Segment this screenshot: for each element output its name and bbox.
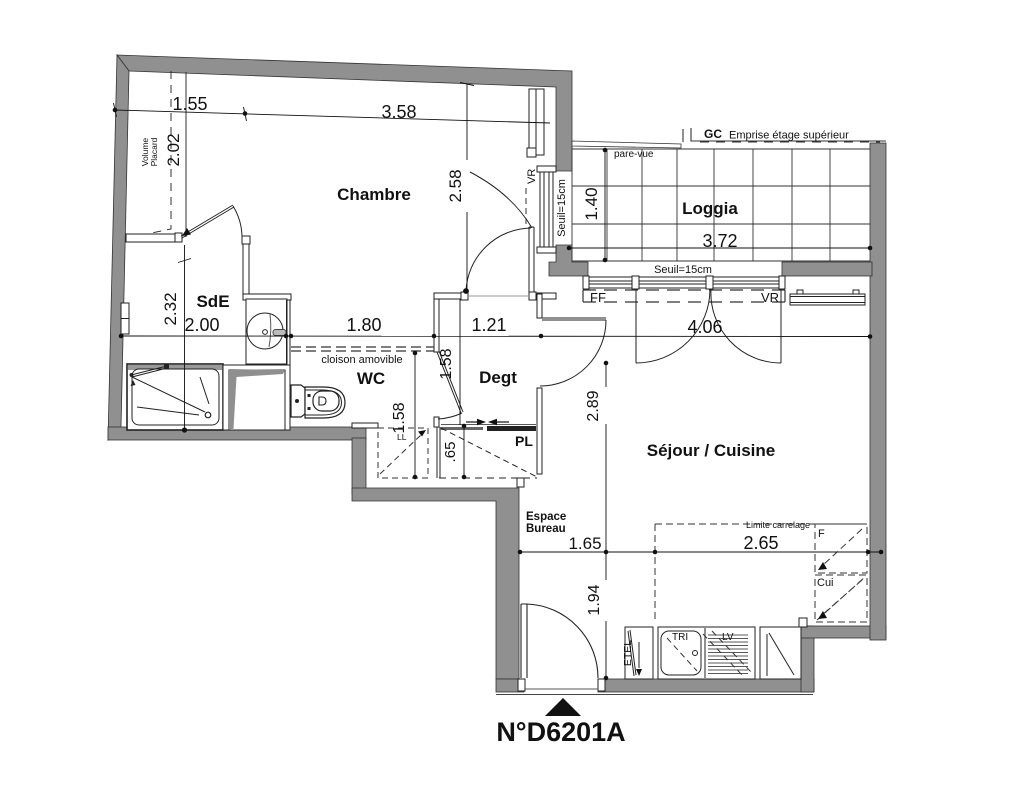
svg-text:ETEL: ETEL [622, 640, 634, 666]
svg-text:1.58: 1.58 [438, 348, 455, 379]
svg-text:F: F [818, 528, 825, 540]
svg-text:2.02: 2.02 [164, 133, 183, 166]
svg-text:Loggia: Loggia [682, 199, 738, 218]
svg-text:1.40: 1.40 [582, 187, 601, 220]
svg-text:Emprise étage supérieur: Emprise étage supérieur [729, 130, 849, 142]
svg-text:VR: VR [761, 290, 779, 305]
svg-text:Degt: Degt [479, 368, 517, 387]
svg-text:3.72: 3.72 [702, 231, 737, 251]
svg-text:LV: LV [722, 632, 734, 643]
svg-text:GC: GC [704, 127, 722, 141]
svg-text:3.58: 3.58 [381, 102, 416, 122]
svg-text:pare-vue: pare-vue [614, 149, 654, 160]
svg-text:Espace: Espace [526, 511, 566, 523]
svg-text:PL: PL [515, 433, 533, 449]
svg-text:2.32: 2.32 [161, 292, 180, 325]
svg-text:1.94: 1.94 [586, 584, 603, 615]
svg-text:Séjour / Cuisine: Séjour / Cuisine [647, 441, 775, 460]
svg-text:1.55: 1.55 [172, 94, 207, 114]
svg-text:WC: WC [357, 369, 385, 388]
svg-text:Placard: Placard [149, 137, 159, 166]
svg-text:Cui: Cui [817, 577, 834, 589]
svg-text:1.58: 1.58 [391, 402, 408, 433]
svg-text:2.58: 2.58 [446, 169, 465, 202]
svg-text:Seuil=15cm: Seuil=15cm [654, 264, 712, 276]
svg-text:.65: .65 [442, 442, 459, 463]
svg-text:1.80: 1.80 [346, 315, 381, 335]
svg-text:Limite carrelage: Limite carrelage [746, 520, 810, 530]
svg-text:FF: FF [590, 290, 606, 305]
svg-text:TRI: TRI [672, 632, 688, 643]
svg-text:SdE: SdE [196, 292, 229, 311]
svg-text:Bureau: Bureau [526, 523, 566, 535]
svg-text:cloison amovible: cloison amovible [321, 354, 402, 366]
svg-text:4.06: 4.06 [687, 317, 722, 337]
svg-text:1.65: 1.65 [568, 534, 601, 553]
svg-text:2.00: 2.00 [184, 315, 219, 335]
svg-text:VR: VR [526, 169, 538, 184]
svg-text:1.21: 1.21 [471, 315, 506, 335]
svg-text:Chambre: Chambre [337, 185, 411, 204]
svg-text:Seuil=15cm: Seuil=15cm [556, 179, 568, 237]
svg-text:N°D6201A: N°D6201A [496, 717, 625, 747]
svg-text:2.65: 2.65 [743, 533, 778, 553]
svg-text:2.89: 2.89 [585, 390, 602, 421]
